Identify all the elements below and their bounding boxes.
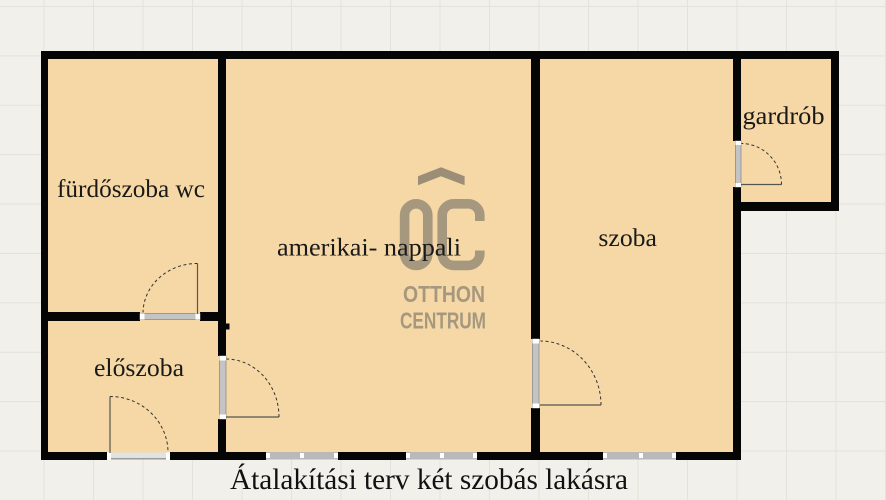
svg-text:Átalakítási terv két szobás la: Átalakítási terv két szobás lakásra [230,463,628,496]
svg-text:szoba: szoba [598,225,657,252]
svg-text:fürdőszoba wc: fürdőszoba wc [57,176,205,203]
svg-text:gardrób: gardrób [743,103,825,130]
svg-text:amerikai- nappali: amerikai- nappali [277,235,461,262]
svg-text:előszoba: előszoba [94,355,184,382]
svg-text:OTTHON: OTTHON [403,281,485,307]
svg-text:CENTRUM: CENTRUM [400,308,486,334]
